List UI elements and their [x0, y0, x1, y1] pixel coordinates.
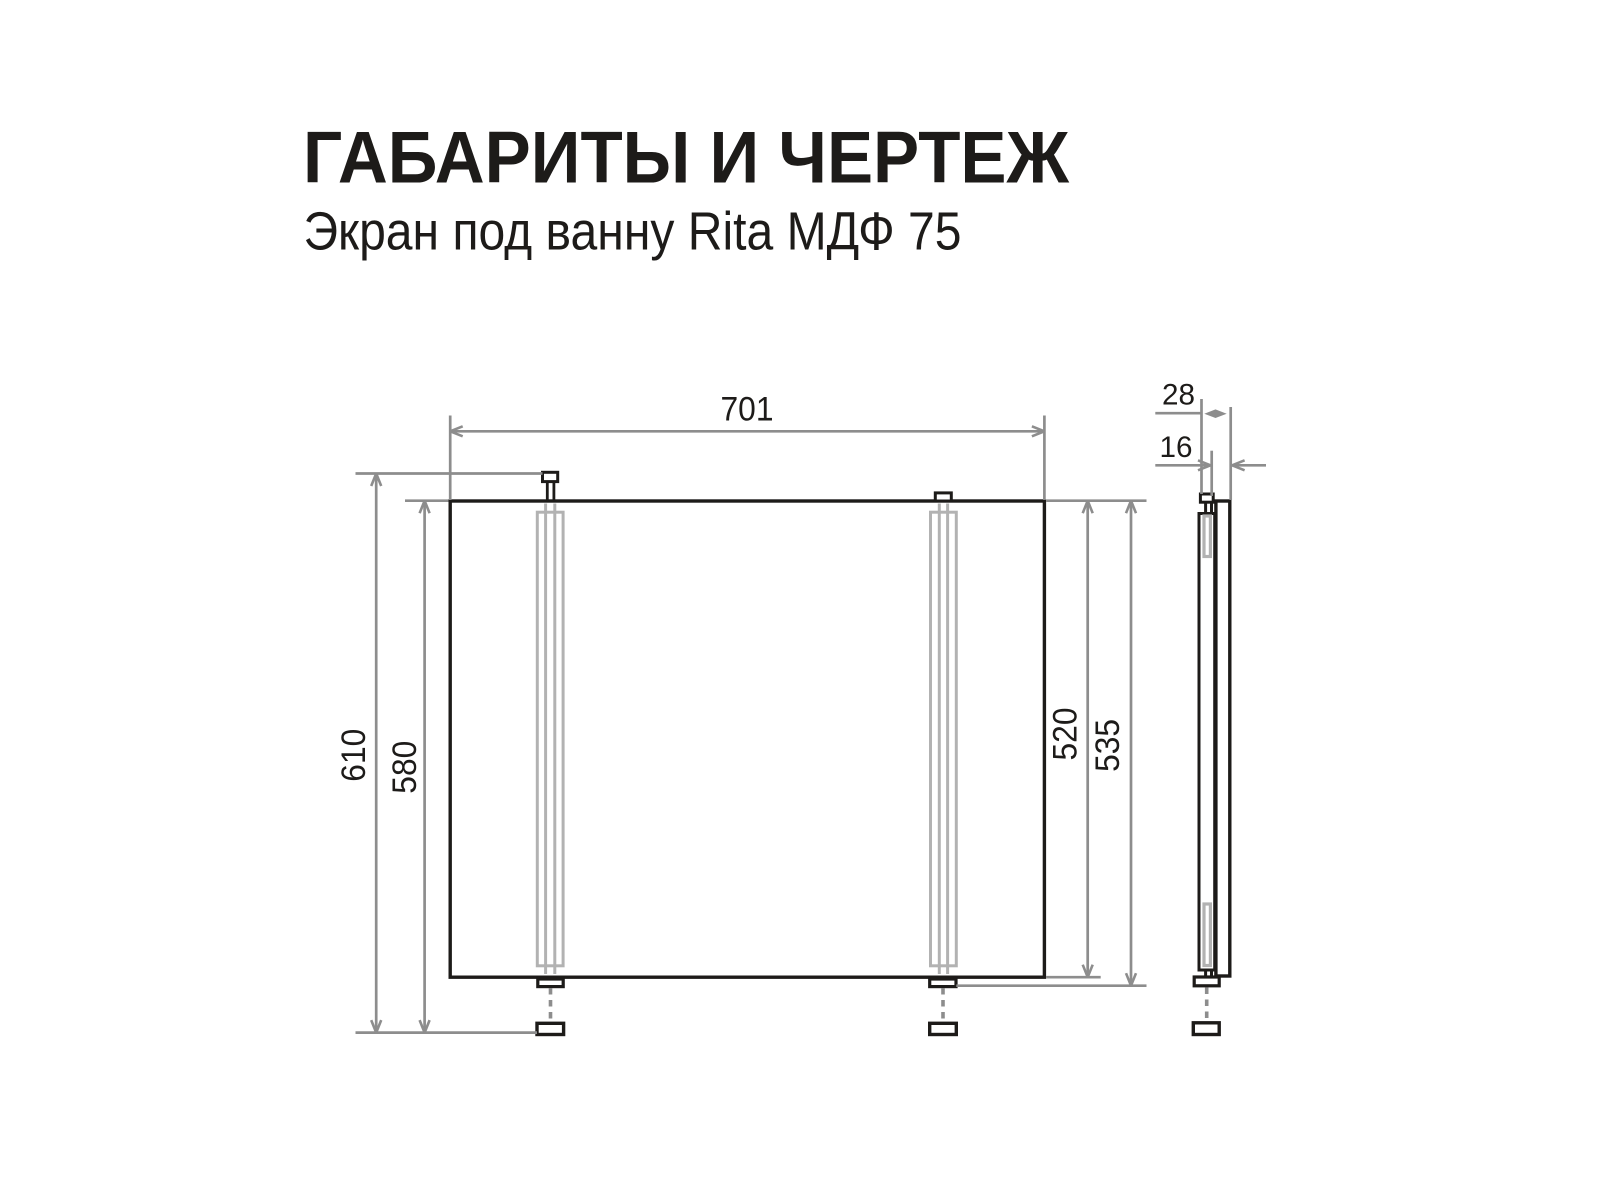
svg-text:520: 520	[1047, 708, 1085, 761]
svg-text:580: 580	[386, 741, 424, 794]
svg-text:Экран под ванну Rita МДФ 75: Экран под ванну Rita МДФ 75	[304, 201, 962, 261]
svg-text:ГАБАРИТЫ И ЧЕРТЕЖ: ГАБАРИТЫ И ЧЕРТЕЖ	[303, 118, 1070, 199]
svg-text:701: 701	[721, 391, 774, 429]
svg-text:535: 535	[1089, 719, 1127, 772]
svg-text:610: 610	[335, 729, 373, 782]
svg-text:28: 28	[1162, 379, 1195, 412]
svg-text:16: 16	[1160, 431, 1193, 464]
